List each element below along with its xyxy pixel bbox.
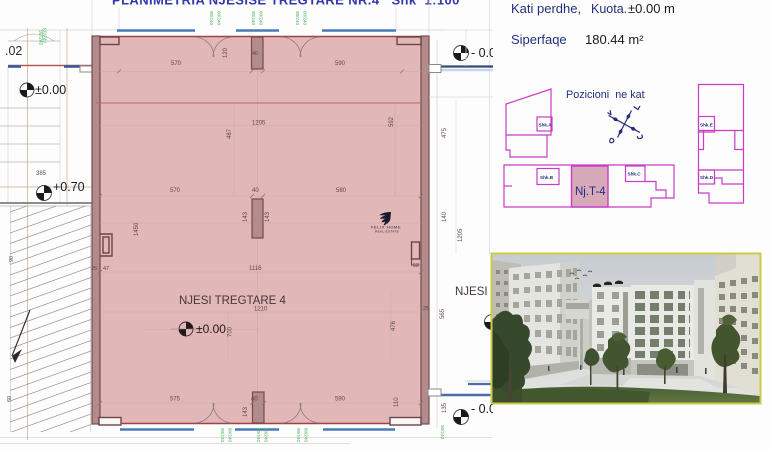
svg-text:90/240: 90/240 [295, 11, 300, 25]
svg-text:590: 590 [335, 397, 346, 403]
svg-text:.02: .02 [5, 44, 22, 58]
svg-text:385: 385 [36, 171, 47, 177]
svg-text:80/240: 80/240 [217, 11, 222, 25]
svg-text:1205: 1205 [458, 228, 464, 242]
svg-text:+0.70: +0.70 [53, 180, 85, 194]
svg-text:580: 580 [336, 188, 347, 194]
svg-text:143: 143 [243, 211, 249, 222]
svg-text:1116: 1116 [249, 266, 262, 272]
svg-text:25: 25 [91, 266, 97, 272]
svg-text:±0.00 m: ±0.00 m [628, 1, 675, 16]
svg-text:90/240: 90/240 [209, 11, 214, 25]
svg-text:80/240: 80/240 [264, 428, 269, 442]
svg-text:90/240: 90/240 [220, 428, 225, 442]
svg-text:143: 143 [243, 406, 249, 417]
svg-text:90/240: 90/240 [256, 428, 261, 442]
svg-text:±0.00: ±0.00 [35, 83, 66, 97]
svg-text:25: 25 [423, 306, 429, 312]
svg-text:590: 590 [335, 61, 346, 67]
svg-text:1210: 1210 [254, 307, 268, 313]
svg-text:Kuota.: Kuota. [591, 2, 627, 16]
svg-text:80/240: 80/240 [228, 428, 233, 442]
svg-text:Shk.C: Shk.C [628, 172, 642, 177]
svg-text:110: 110 [394, 397, 400, 407]
svg-text:PLANIMETRIA NJESISE TREGTARE N: PLANIMETRIA NJESISE TREGTARE NR.4 Shk 1:… [112, 0, 460, 8]
svg-text:±0.00: ±0.00 [196, 322, 226, 336]
svg-text:Shk.A: Shk.A [539, 123, 553, 128]
svg-text:40: 40 [252, 188, 259, 194]
svg-text:475: 475 [442, 127, 448, 138]
svg-text:570: 570 [170, 188, 181, 194]
svg-text:Nj.T-4: Nj.T-4 [575, 186, 606, 198]
svg-text:40: 40 [251, 397, 258, 403]
svg-text:40: 40 [252, 51, 258, 57]
svg-text:90/240: 90/240 [251, 11, 256, 25]
svg-text:90/240: 90/240 [440, 425, 445, 439]
svg-text:52: 52 [413, 263, 419, 269]
svg-text:80/240: 80/240 [303, 11, 308, 25]
svg-text:476: 476 [391, 320, 397, 331]
svg-text:565: 565 [440, 308, 446, 319]
svg-text:700: 700 [228, 326, 234, 337]
svg-text:180.44 m²: 180.44 m² [585, 32, 644, 47]
svg-text:Siperfaqe: Siperfaqe [511, 32, 567, 47]
svg-text:47: 47 [103, 266, 109, 272]
svg-text:80/240: 80/240 [304, 428, 309, 442]
svg-text:120: 120 [223, 47, 229, 58]
svg-text:140: 140 [442, 211, 448, 222]
svg-text:60: 60 [7, 396, 13, 402]
svg-text:80/240: 80/240 [41, 28, 47, 44]
svg-text:Shk.E: Shk.E [700, 123, 713, 128]
svg-text:143: 143 [265, 211, 271, 222]
svg-text:575: 575 [170, 397, 181, 403]
svg-text:592: 592 [389, 116, 395, 127]
svg-text:NJESI TREGTARE 4: NJESI TREGTARE 4 [179, 295, 287, 307]
svg-text:- 0.02: - 0.02 [471, 46, 503, 60]
svg-text:90: 90 [9, 256, 15, 262]
svg-text:1205: 1205 [252, 121, 266, 127]
svg-text:Pozicioni ne kat: Pozicioni ne kat [566, 89, 645, 101]
svg-text:487: 487 [227, 128, 233, 139]
svg-text:Kati perdhe,: Kati perdhe, [511, 1, 581, 16]
svg-text:80/240: 80/240 [259, 11, 264, 25]
svg-text:135: 135 [442, 402, 448, 413]
svg-text:REAL ESTATE: REAL ESTATE [375, 230, 399, 234]
svg-text:90/240: 90/240 [296, 428, 301, 442]
svg-text:570: 570 [171, 61, 182, 67]
svg-text:Shk.D: Shk.D [700, 175, 714, 180]
svg-text:Shk.B: Shk.B [540, 175, 554, 180]
svg-text:1450: 1450 [134, 222, 140, 236]
